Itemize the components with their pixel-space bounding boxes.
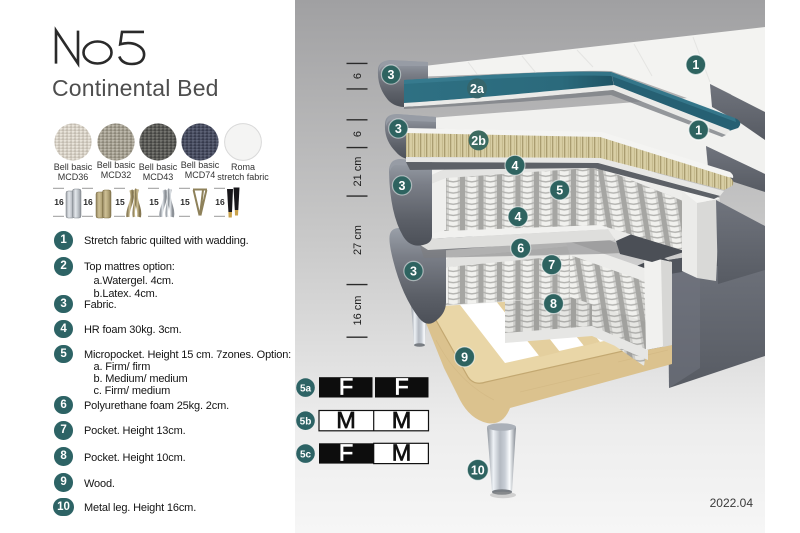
svg-text:3: 3 <box>399 179 406 193</box>
svg-text:3: 3 <box>395 122 402 136</box>
svg-text:16 cm: 16 cm <box>352 296 364 326</box>
svg-text:9: 9 <box>461 350 468 364</box>
svg-text:2b: 2b <box>471 134 486 148</box>
svg-text:7: 7 <box>548 258 555 272</box>
svg-text:F: F <box>339 440 353 466</box>
svg-text:1: 1 <box>692 58 699 72</box>
svg-text:1: 1 <box>695 123 702 137</box>
svg-text:8: 8 <box>550 297 557 311</box>
svg-text:M: M <box>392 407 412 433</box>
svg-text:3: 3 <box>410 265 417 279</box>
svg-text:2a: 2a <box>470 82 485 96</box>
svg-text:6: 6 <box>517 242 524 256</box>
svg-text:3: 3 <box>388 68 395 82</box>
svg-text:5a: 5a <box>300 383 312 394</box>
svg-text:10: 10 <box>471 463 485 477</box>
svg-text:6: 6 <box>352 73 364 79</box>
svg-text:4: 4 <box>515 210 522 224</box>
svg-text:5: 5 <box>556 184 563 198</box>
svg-text:F: F <box>339 374 353 400</box>
svg-text:4: 4 <box>512 159 519 173</box>
svg-text:5b: 5b <box>300 416 312 427</box>
svg-text:5c: 5c <box>300 449 312 460</box>
svg-text:2022.04: 2022.04 <box>710 496 754 510</box>
svg-text:6: 6 <box>352 131 364 137</box>
svg-text:M: M <box>392 440 412 466</box>
svg-text:27 cm: 27 cm <box>352 225 364 255</box>
svg-text:M: M <box>336 407 356 433</box>
svg-text:F: F <box>394 374 408 400</box>
svg-text:21 cm: 21 cm <box>352 157 364 187</box>
